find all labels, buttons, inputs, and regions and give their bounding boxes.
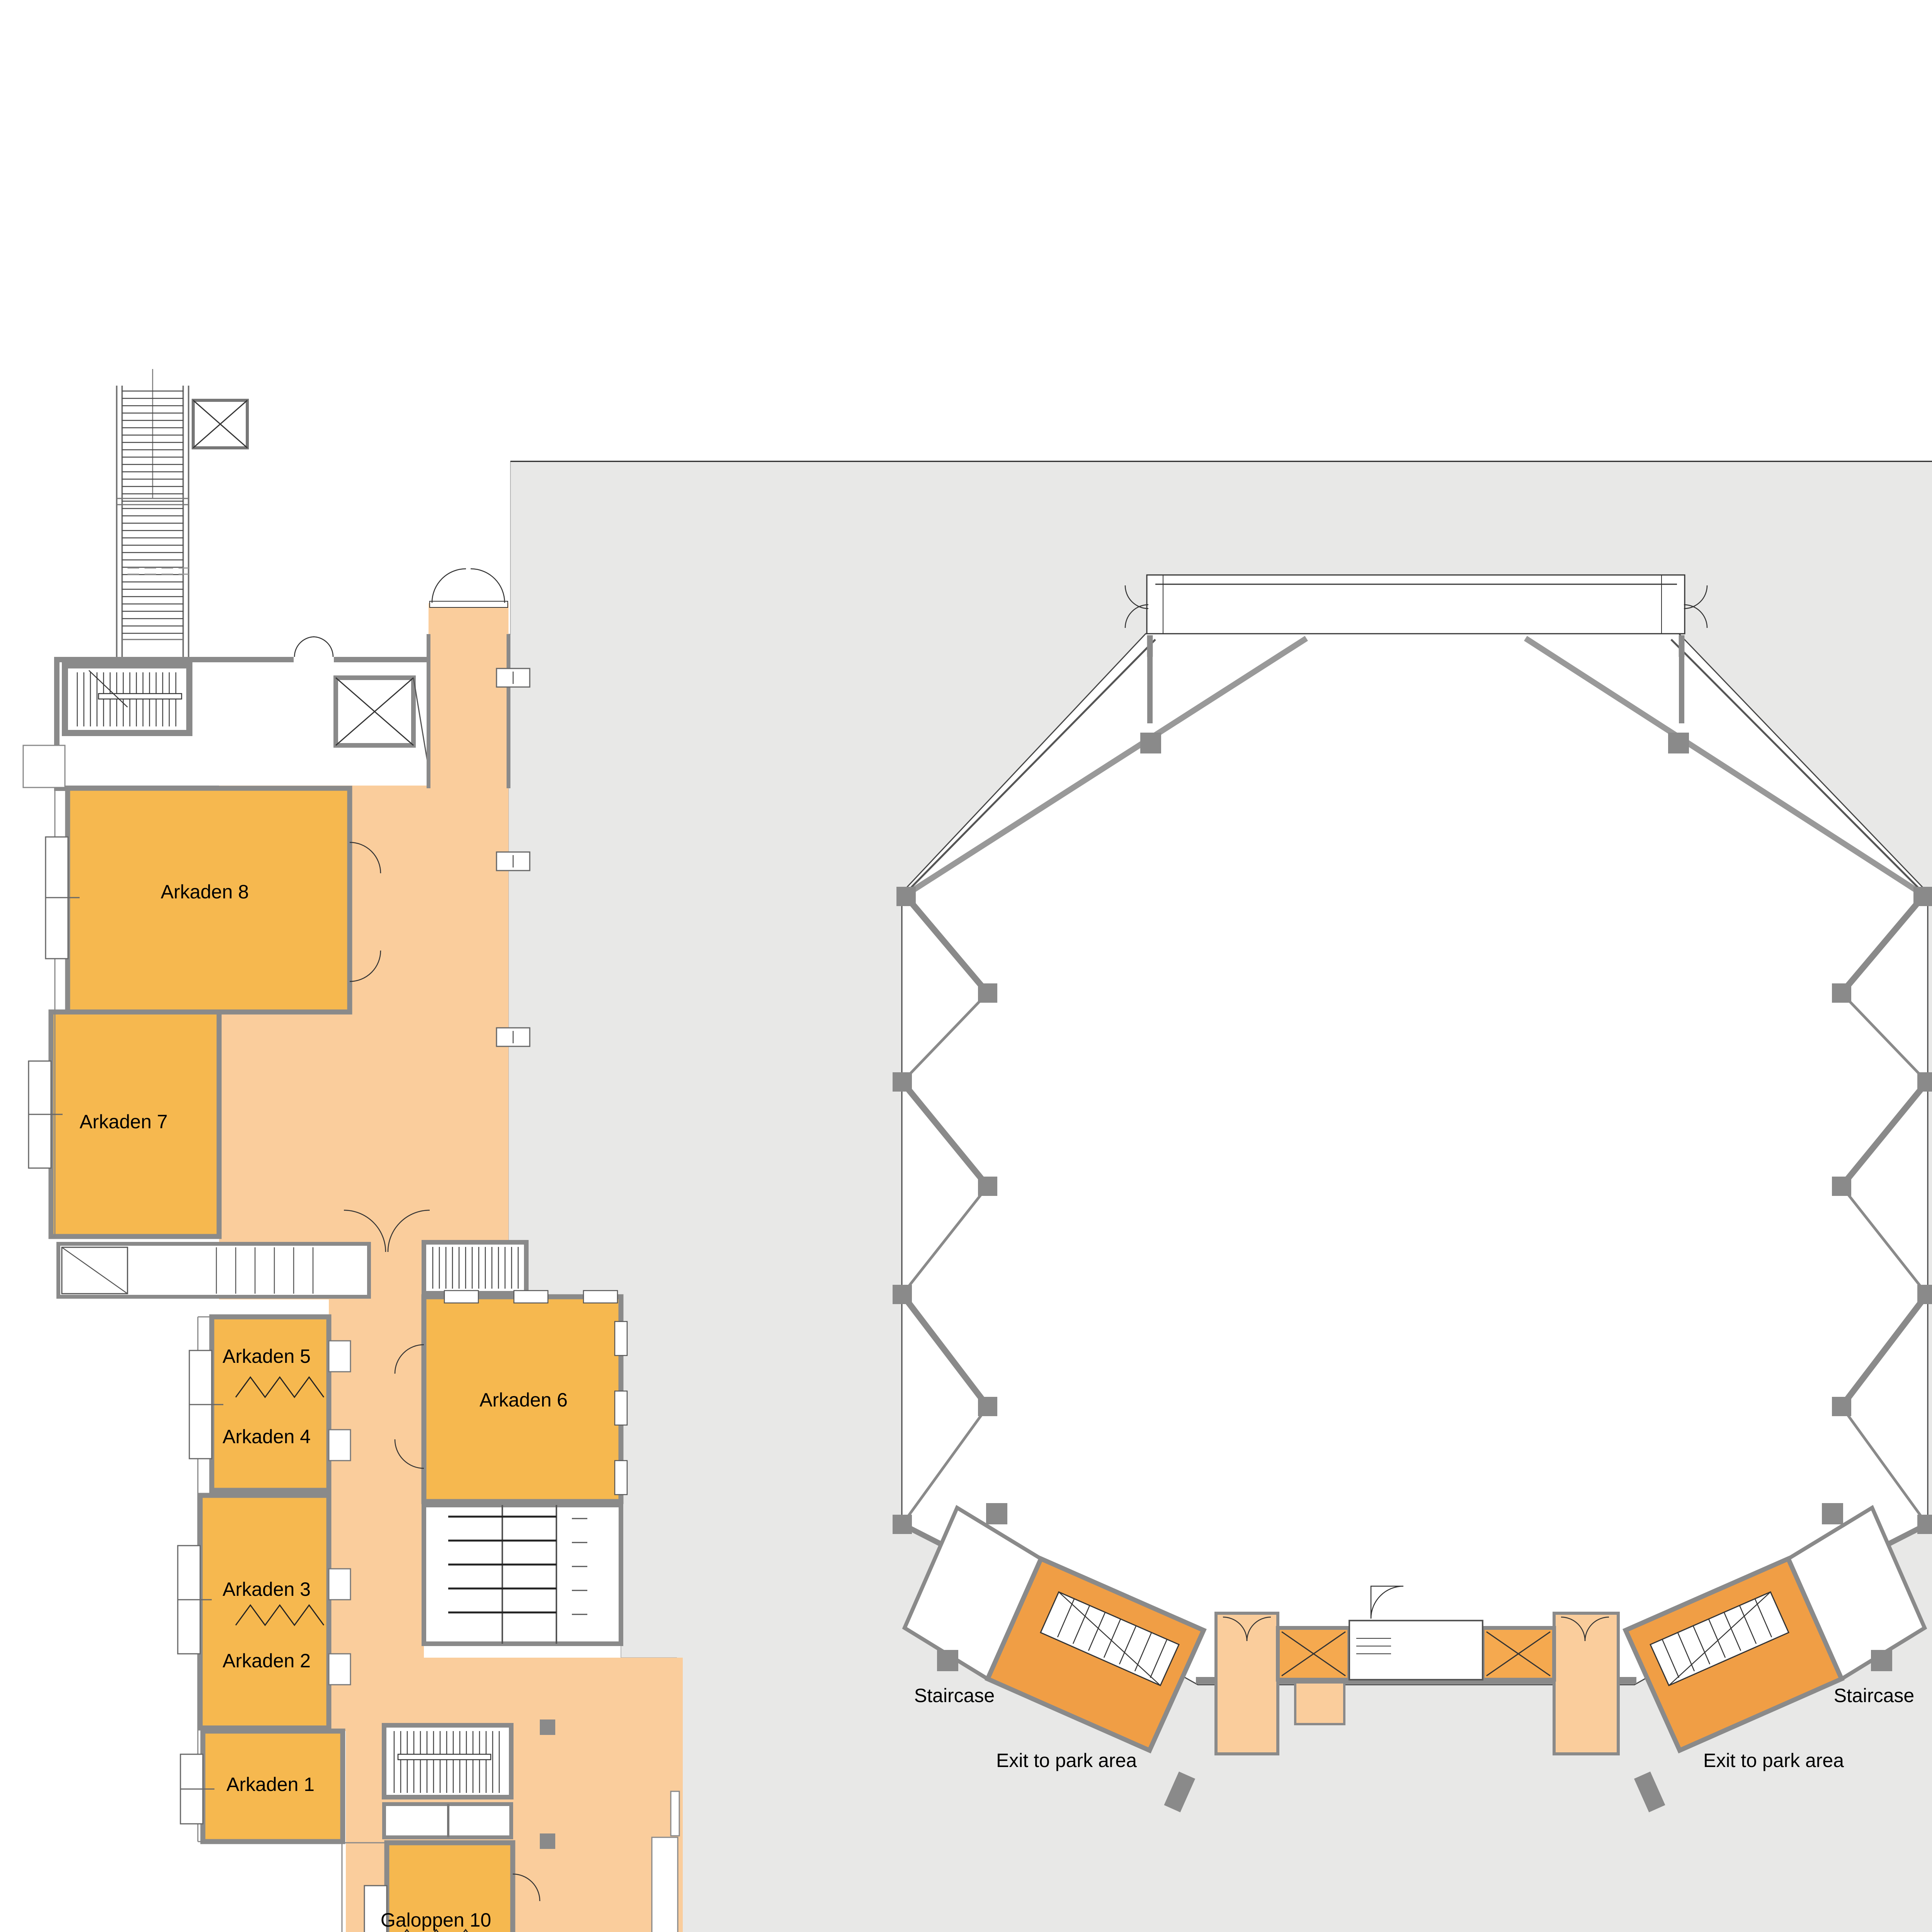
svg-text:Arkaden 5: Arkaden 5 [223, 1345, 311, 1367]
svg-text:Staircase: Staircase [1834, 1685, 1914, 1706]
svg-text:Arkaden 8: Arkaden 8 [161, 881, 249, 903]
svg-text:Arkaden 4: Arkaden 4 [223, 1426, 311, 1447]
svg-text:Arkaden 6: Arkaden 6 [480, 1389, 568, 1411]
svg-text:Arkaden 2: Arkaden 2 [223, 1650, 311, 1672]
svg-text:Arkaden 1: Arkaden 1 [226, 1774, 315, 1795]
svg-text:Exit to park area: Exit to park area [996, 1750, 1137, 1771]
svg-text:Arkaden 3: Arkaden 3 [223, 1578, 311, 1600]
svg-text:Exit to park area: Exit to park area [1703, 1750, 1844, 1771]
svg-text:Galoppen 10: Galoppen 10 [381, 1909, 491, 1931]
svg-text:Arkaden 7: Arkaden 7 [80, 1111, 168, 1133]
svg-text:Staircase: Staircase [914, 1685, 995, 1706]
